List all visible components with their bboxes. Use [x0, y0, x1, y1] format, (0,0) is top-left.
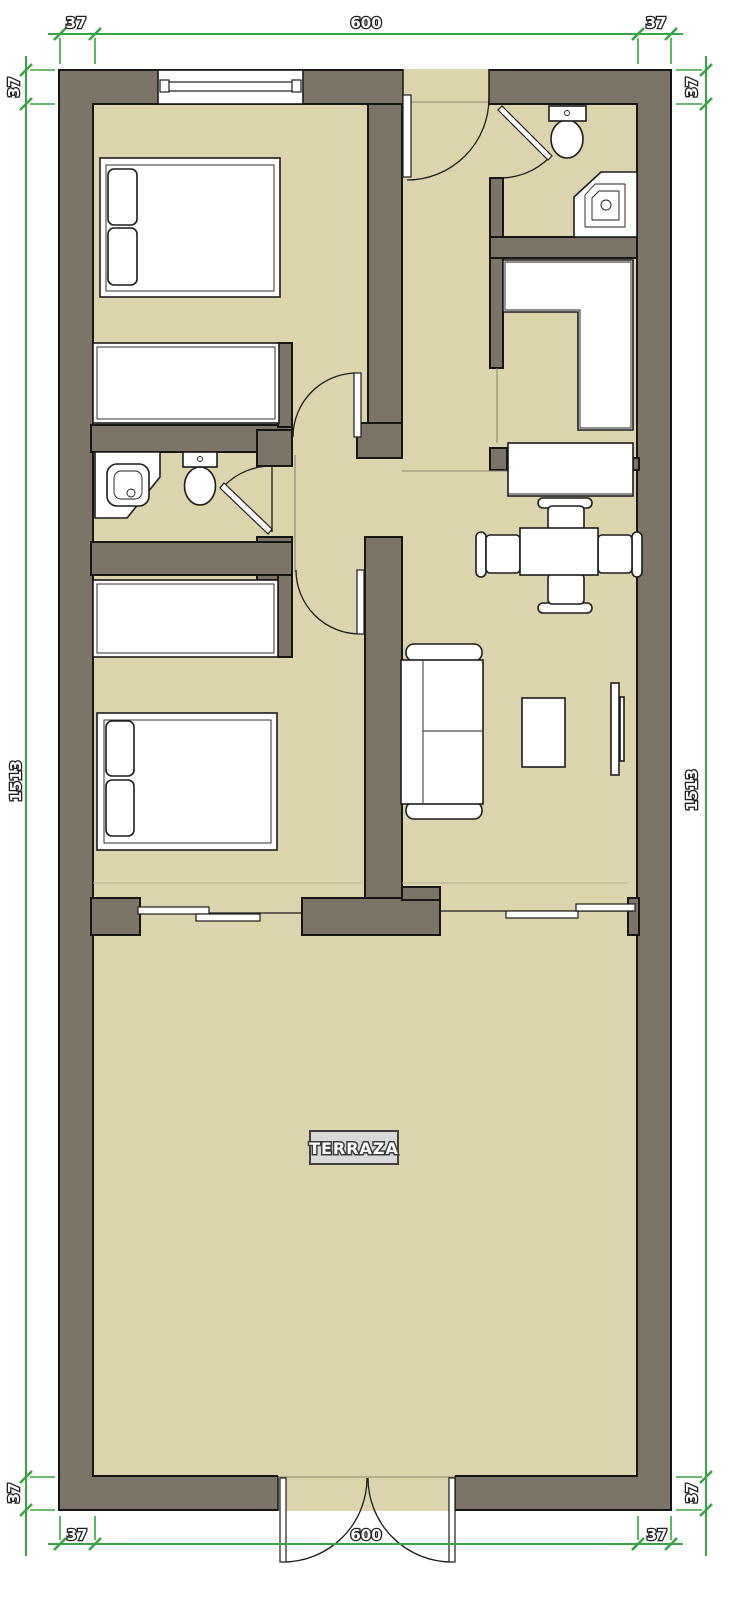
toilet-1-tank	[183, 452, 217, 467]
wall-stub-wardrobe2	[278, 575, 292, 657]
dim-right-wall-bottom: 37	[683, 1483, 701, 1504]
terrace-opening-exterior-mask	[278, 1511, 455, 1517]
bar-desk	[508, 443, 633, 496]
window-bedroom1	[158, 70, 303, 104]
wall-stub-wardrobe1	[278, 343, 292, 427]
dimension-bottom: 37 600 37	[48, 1516, 683, 1550]
wall-terrace-pillar-step	[402, 887, 440, 900]
bedroom2-door-leaf	[357, 570, 364, 634]
entrance-opening-exterior-mask	[403, 63, 489, 69]
window-cap-right	[292, 80, 301, 92]
wardrobe-2	[93, 580, 278, 657]
dim-right-height: 1513	[683, 769, 701, 811]
entrance-opening	[403, 68, 489, 106]
terrace-door-leaf-left	[280, 1478, 286, 1562]
wall-bathroom1-jamb-top	[257, 430, 292, 466]
dim-left-height: 1513	[7, 760, 25, 802]
sliding-panel-left-a	[138, 907, 209, 914]
chair-left-seat	[486, 535, 520, 573]
wall-bedroom2-living	[365, 537, 402, 935]
dim-top-wall-left: 37	[66, 14, 87, 32]
dim-left-wall-bottom: 37	[5, 1483, 23, 1504]
dim-left-wall-top: 37	[5, 77, 23, 98]
window-cap-left	[160, 80, 169, 92]
wardrobe-1	[93, 343, 279, 423]
tv-bracket	[620, 697, 624, 761]
floor-plan-canvas: TERRAZA 37 600 37 37 600 37	[0, 0, 733, 1600]
dimension-right: 37 1513 37	[676, 56, 712, 1556]
dim-bottom-wall-left: 37	[67, 1526, 88, 1544]
window-glazing-bar	[166, 82, 296, 91]
dim-top-wall-right: 37	[646, 14, 667, 32]
bed2-pillow-top	[106, 721, 134, 776]
wall-terrace-pillar	[302, 898, 440, 935]
wall-kitchen-bar-pier	[490, 448, 507, 470]
bed1-pillow-bottom	[108, 228, 137, 285]
wall-terrace-stub-left	[91, 898, 140, 935]
chair-left-backrest	[476, 532, 486, 577]
dim-bottom-width: 600	[350, 1526, 381, 1544]
bedroom1-furniture	[93, 158, 280, 423]
sofa-armrest-top	[406, 644, 482, 661]
bedroom2-furniture	[93, 580, 278, 850]
toilet-2-bowl	[551, 120, 583, 158]
sliding-panel-right-a	[506, 911, 578, 918]
dim-right-wall-top: 37	[683, 77, 701, 98]
toilet-1-bowl	[185, 467, 216, 505]
coffee-table	[522, 698, 565, 767]
terrace-label: TERRAZA	[309, 1131, 399, 1164]
sliding-panel-right-b	[576, 904, 635, 911]
wall-bathroom1-bedroom2	[91, 542, 292, 575]
bed1-pillow-top	[108, 169, 137, 225]
dimension-left: 37 1513 37	[5, 56, 55, 1556]
toilet-2-tank	[549, 106, 586, 121]
chair-bottom-seat	[548, 574, 584, 604]
bed2-pillow-bottom	[106, 780, 134, 836]
entrance-door-leaf	[403, 95, 411, 177]
sliding-panel-left-b	[196, 914, 260, 921]
sofa-body	[401, 660, 483, 804]
dimension-top: 37 600 37	[48, 14, 683, 64]
bedroom1-door-leaf	[354, 373, 361, 437]
tv-screen	[611, 683, 619, 775]
dim-bottom-wall-right: 37	[647, 1526, 668, 1544]
chair-right-backrest	[632, 532, 642, 577]
wall-bedroom1-door-pier	[357, 423, 402, 458]
chair-top-seat	[548, 506, 584, 530]
wall-bathroom2-kitchen	[490, 237, 637, 258]
floor-plan: TERRAZA 37 600 37 37 600 37	[0, 0, 733, 1600]
wall-hall-kitchen	[490, 178, 503, 368]
sink-1	[107, 464, 149, 506]
chair-right-seat	[598, 535, 632, 573]
wall-bedroom1-hall	[368, 104, 402, 458]
dim-top-width: 600	[350, 14, 381, 32]
terrace-door-leaf-right	[449, 1478, 455, 1562]
dining-table	[520, 528, 598, 575]
terrace-label-text: TERRAZA	[309, 1139, 399, 1158]
